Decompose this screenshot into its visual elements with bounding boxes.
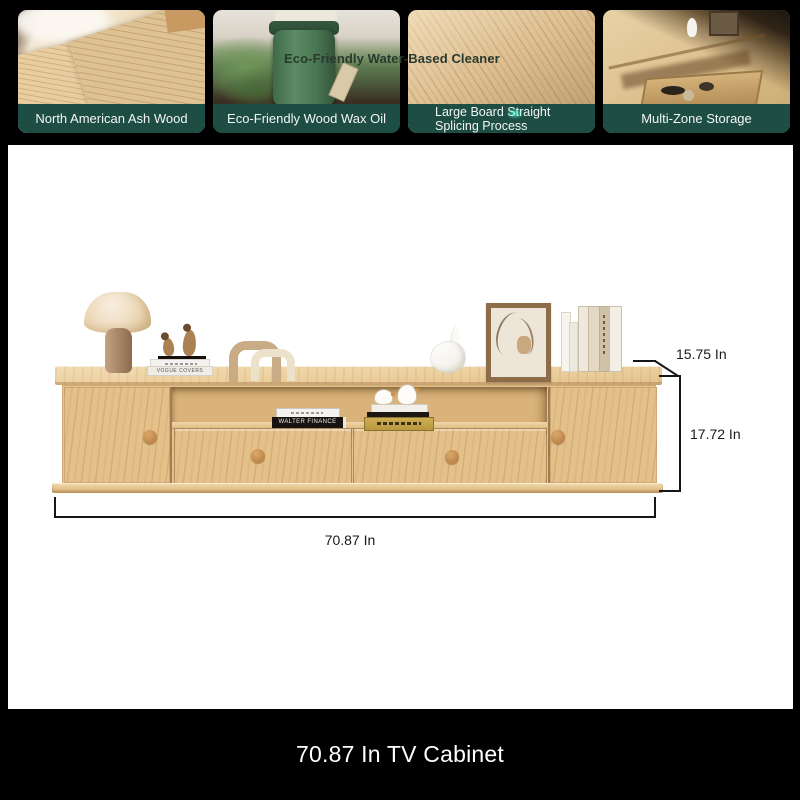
shelf-book (364, 417, 434, 431)
gallery-thumb-label: North American Ash Wood (18, 104, 205, 133)
artifact-glitch (506, 108, 524, 119)
dove-figurine (398, 385, 416, 404)
cabinet-open-shelf (172, 387, 547, 425)
bird-head (183, 324, 192, 333)
width-dimension-line (54, 516, 656, 518)
width-dimension-tick-left (54, 497, 56, 518)
label-line-1: Large Board Straight (435, 105, 550, 119)
product-title: 70.87 In TV Cabinet (296, 741, 504, 768)
drawer-item (699, 82, 714, 91)
book-spine-text (165, 363, 197, 365)
cat-figurine-small (687, 18, 697, 37)
depth-dimension-label: 15.75 In (676, 346, 727, 362)
dove-beak (415, 388, 419, 391)
overlay-caption: Eco-Friendly Water-Based Cleaner (284, 51, 500, 66)
gallery-thumb-wax-oil[interactable]: Eco-Friendly Wood Wax Oil (213, 10, 400, 133)
height-dimension-tick-bottom (659, 490, 681, 492)
arch-sculpture (251, 349, 295, 381)
drawer-2-knob (445, 450, 459, 464)
height-dimension-label: 17.72 In (690, 426, 741, 442)
width-dimension-label: 70.87 In (280, 532, 420, 548)
drawer-1-knob (251, 449, 265, 463)
feature-gallery: North American Ash Wood Eco-Friendly Woo… (18, 10, 784, 133)
gallery-thumb-label: Large Board Straight Splicing Process (408, 104, 595, 133)
width-dimension-tick-right (654, 497, 656, 518)
gallery-thumb-splicing[interactable]: Large Board Straight Splicing Process (408, 10, 595, 133)
glass-cup (683, 90, 694, 101)
cabinet-base-panel (52, 483, 663, 493)
bookend-step (569, 322, 578, 372)
book-spine-text (377, 422, 421, 425)
mushroom-lamp-shade (84, 292, 151, 333)
title-bar: 70.87 In TV Cabinet (0, 709, 800, 800)
depth-leader-line (633, 360, 656, 362)
stacked-book: VOGUE COVERS (147, 366, 213, 376)
gallery-thumb-ash-wood[interactable]: North American Ash Wood (18, 10, 205, 133)
picture-frame-small (709, 11, 739, 36)
drawer-item (661, 86, 685, 95)
height-dimension-line (679, 375, 681, 492)
book-spine-text (603, 315, 605, 355)
dove-beak (391, 393, 395, 396)
gallery-thumb-label: Multi-Zone Storage (603, 104, 790, 133)
green-bucket (273, 30, 335, 106)
book-spine-text (291, 412, 323, 414)
frame-artwork (517, 336, 531, 354)
standing-book (609, 306, 622, 372)
gallery-thumb-storage[interactable]: Multi-Zone Storage (603, 10, 790, 133)
bird-head (160, 332, 169, 341)
cat-figurine (431, 342, 465, 372)
shelf-book: WALTER FINANCE (272, 417, 346, 428)
dove-figurine (375, 390, 392, 404)
product-detail-image: North American Ash Wood Eco-Friendly Woo… (0, 0, 800, 800)
right-door-knob (551, 430, 565, 444)
mushroom-lamp-base (105, 328, 132, 373)
left-door-knob (143, 430, 157, 444)
gallery-thumb-label: Eco-Friendly Wood Wax Oil (213, 104, 400, 133)
label-line-2: Splicing Process (435, 119, 527, 133)
picture-frame (486, 303, 551, 382)
